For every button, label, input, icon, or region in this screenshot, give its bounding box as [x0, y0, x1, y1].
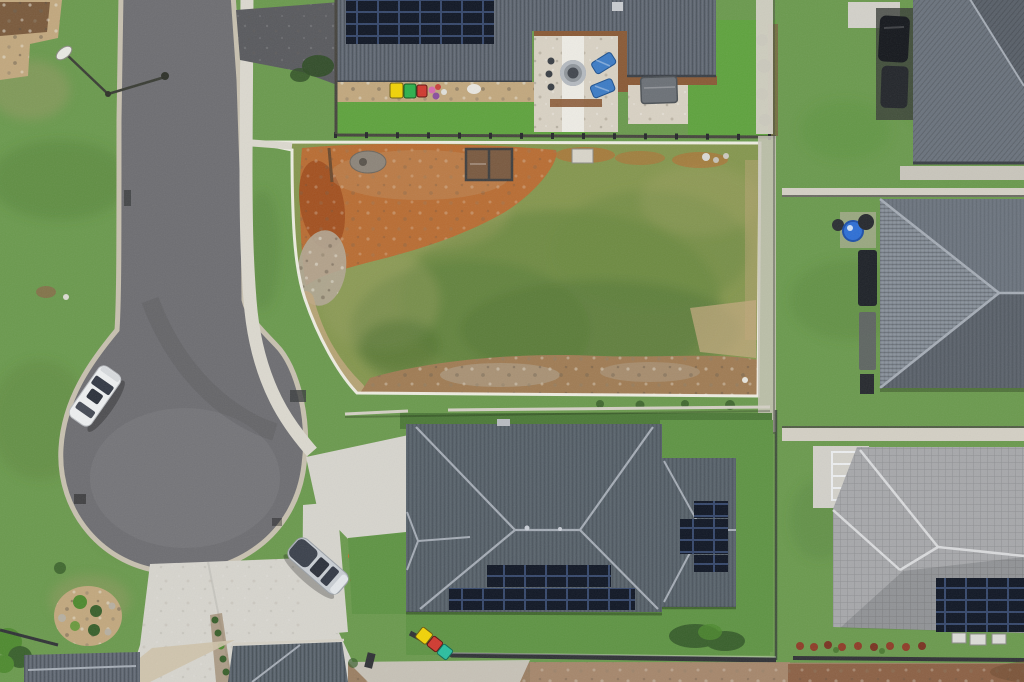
aerial-photograph: [0, 0, 1024, 682]
photo-grain-overlay: [0, 0, 1024, 682]
aerial-photo-stage: [0, 0, 1024, 682]
